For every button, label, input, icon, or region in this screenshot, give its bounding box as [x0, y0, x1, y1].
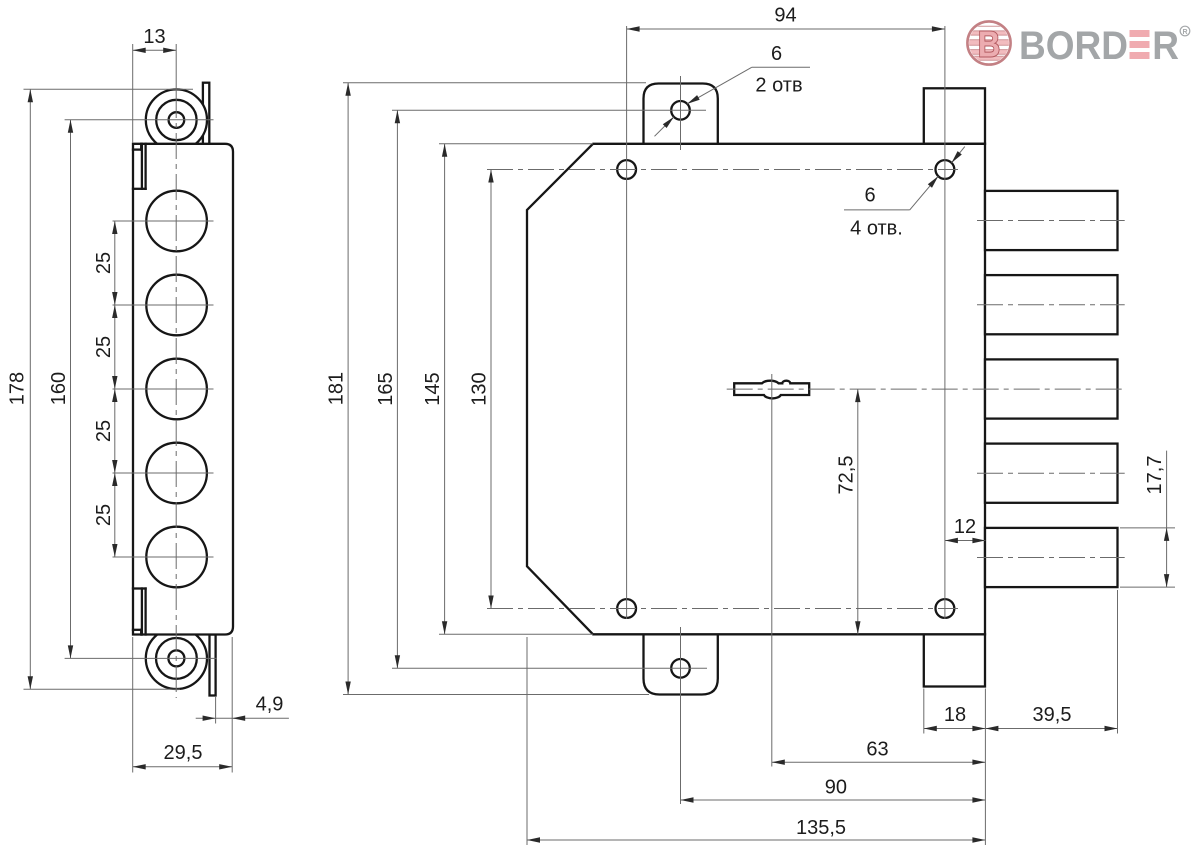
- svg-text:25: 25: [93, 504, 115, 526]
- svg-text:B: B: [978, 25, 1000, 65]
- svg-text:145: 145: [422, 372, 444, 405]
- svg-text:90: 90: [825, 777, 847, 799]
- svg-text:4 отв.: 4 отв.: [850, 218, 903, 240]
- svg-text:25: 25: [93, 420, 115, 442]
- svg-text:130: 130: [469, 372, 491, 405]
- svg-text:94: 94: [774, 5, 796, 27]
- svg-text:160: 160: [48, 372, 70, 405]
- svg-text:72,5: 72,5: [835, 456, 857, 495]
- svg-text:6: 6: [864, 185, 875, 207]
- svg-text:178: 178: [7, 372, 29, 405]
- svg-text:BORD: BORD: [1019, 24, 1128, 69]
- svg-text:63: 63: [866, 739, 888, 761]
- svg-text:2 отв: 2 отв: [755, 75, 802, 97]
- svg-text:25: 25: [93, 252, 115, 274]
- svg-text:6: 6: [771, 43, 782, 65]
- svg-text:29,5: 29,5: [164, 742, 203, 764]
- svg-text:12: 12: [954, 516, 976, 538]
- svg-text:18: 18: [944, 704, 966, 726]
- svg-text:R: R: [1152, 24, 1179, 69]
- svg-text:4,9: 4,9: [256, 694, 284, 716]
- svg-text:25: 25: [93, 336, 115, 358]
- svg-text:39,5: 39,5: [1033, 704, 1072, 726]
- svg-text:135,5: 135,5: [796, 817, 846, 839]
- svg-text:181: 181: [326, 372, 348, 405]
- svg-text:165: 165: [375, 372, 397, 405]
- svg-text:13: 13: [143, 26, 165, 48]
- svg-text:R: R: [1182, 29, 1187, 36]
- svg-text:17,7: 17,7: [1144, 456, 1166, 495]
